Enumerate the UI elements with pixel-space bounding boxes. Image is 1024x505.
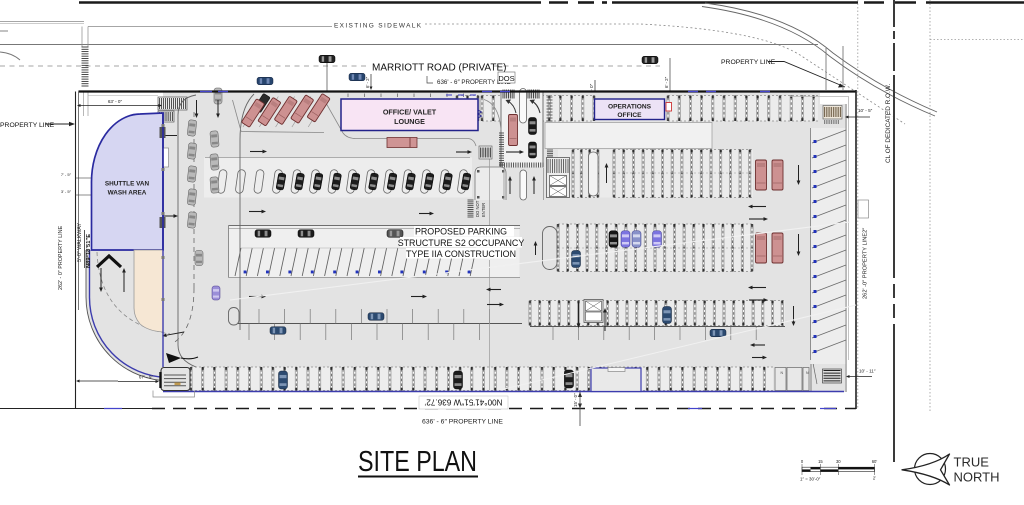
svg-text:ENTER: ENTER: [481, 203, 486, 217]
svg-text:262' -0″ PROPERTY LINE2″: 262' -0″ PROPERTY LINE2″: [863, 228, 869, 299]
svg-text:15: 15: [818, 459, 823, 464]
svg-text:3' - 5″: 3' - 5″: [61, 189, 72, 194]
svg-text:636' - 6″ PROPERTY LINE: 636' - 6″ PROPERTY LINE: [422, 419, 503, 426]
svg-text:N89°18’51″E: N89°18’51″E: [86, 234, 92, 268]
svg-text:5'-0″ WALKWAY: 5'-0″ WALKWAY: [77, 223, 83, 262]
svg-text:15' - 0″: 15' - 0″: [573, 393, 578, 407]
svg-text:TYPE IIA CONSTRUCTION: TYPE IIA CONSTRUCTION: [406, 249, 516, 259]
svg-text:DO NOT: DO NOT: [475, 200, 480, 217]
svg-text:10' - 11″: 10' - 11″: [859, 369, 876, 374]
svg-text:NORTH: NORTH: [954, 470, 1000, 485]
svg-text:CL OF DEDICATED R.O.W.: CL OF DEDICATED R.O.W.: [885, 84, 892, 163]
svg-text:SHUTTLE VAN: SHUTTLE VAN: [105, 181, 150, 188]
svg-text:PROPERTY LINE: PROPERTY LINE: [721, 59, 776, 66]
svg-text:PROPOSED PARKING: PROPOSED PARKING: [415, 227, 507, 237]
svg-text:OPERATIONS: OPERATIONS: [608, 104, 652, 111]
svg-text:63' - 0″: 63' - 0″: [108, 99, 123, 104]
svg-text:EXISTING SIDEWALK: EXISTING SIDEWALK: [334, 23, 422, 30]
svg-text:7' - 5″: 7' - 5″: [61, 172, 72, 177]
svg-text:N00°41’51″W 636.72’: N00°41’51″W 636.72’: [424, 398, 502, 407]
svg-text:67' - 9″: 67' - 9″: [139, 375, 154, 380]
svg-text:262' - 0″ PROPERTY LINE: 262' - 0″ PROPERTY LINE: [58, 225, 64, 290]
svg-text:10' - 5″: 10' - 5″: [858, 108, 873, 113]
svg-text:60’: 60’: [872, 459, 878, 464]
svg-text:OFFICE: OFFICE: [617, 112, 642, 119]
svg-text:1″ = 30’-0″: 1″ = 30’-0″: [800, 477, 821, 482]
svg-text:6' - 2″: 6' - 2″: [365, 76, 370, 88]
svg-text:LOUNGE: LOUNGE: [394, 117, 425, 126]
svg-text:WASH AREA: WASH AREA: [108, 190, 147, 197]
svg-text:2’: 2’: [873, 476, 876, 481]
svg-text:TRUE: TRUE: [954, 455, 990, 470]
svg-text:PROPERTY LINE: PROPERTY LINE: [0, 122, 55, 129]
svg-text:OFFICE/ VALET: OFFICE/ VALET: [383, 108, 437, 117]
svg-text:SITE PLAN: SITE PLAN: [358, 446, 477, 478]
svg-text:30: 30: [836, 459, 841, 464]
svg-text:6' - 2″: 6' - 2″: [664, 76, 669, 88]
svg-text:MARRIOTT ROAD (PRIVATE): MARRIOTT ROAD (PRIVATE): [372, 63, 506, 74]
svg-text:DOS: DOS: [498, 74, 514, 83]
svg-text:STRUCTURE S2 OCCUPANCY: STRUCTURE S2 OCCUPANCY: [398, 238, 525, 248]
